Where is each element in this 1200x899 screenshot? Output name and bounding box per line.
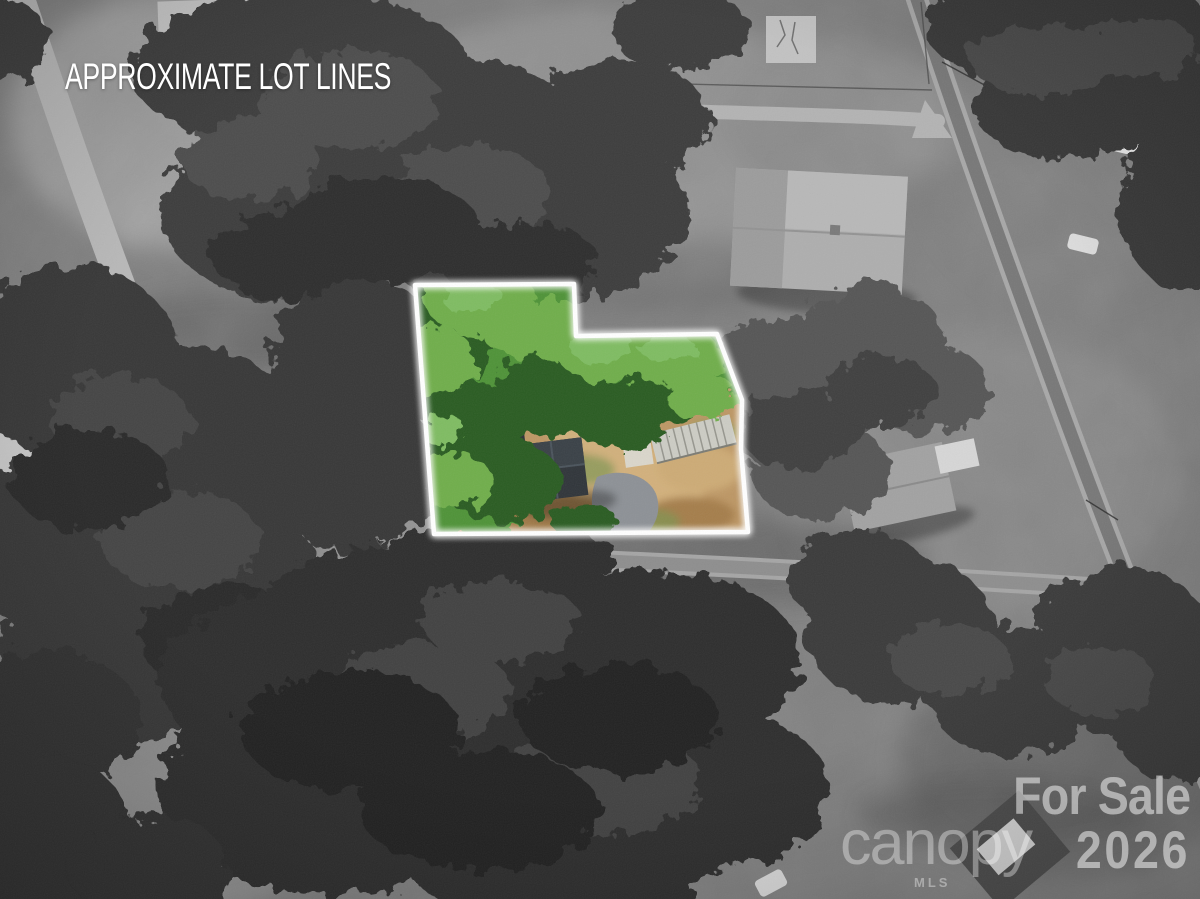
vignette [0, 0, 1200, 899]
title-approximate-lot-lines: APPROXIMATE LOT LINES [65, 56, 391, 98]
aerial-photo-canvas: APPROXIMATE LOT LINES For Sale 2026 cano… [0, 0, 1200, 899]
watermark-for-sale-line1: For Sale [1013, 770, 1190, 824]
watermark-canopy-mls: canopy MLS [840, 812, 1031, 875]
watermark-canopy-wordmark: canopy [840, 808, 1031, 878]
watermark-for-sale: For Sale 2026 [1013, 770, 1190, 878]
aerial-scene [0, 0, 1200, 899]
watermark-for-sale-year: 2026 [1013, 824, 1190, 878]
watermark-mls-label: MLS [914, 876, 950, 889]
